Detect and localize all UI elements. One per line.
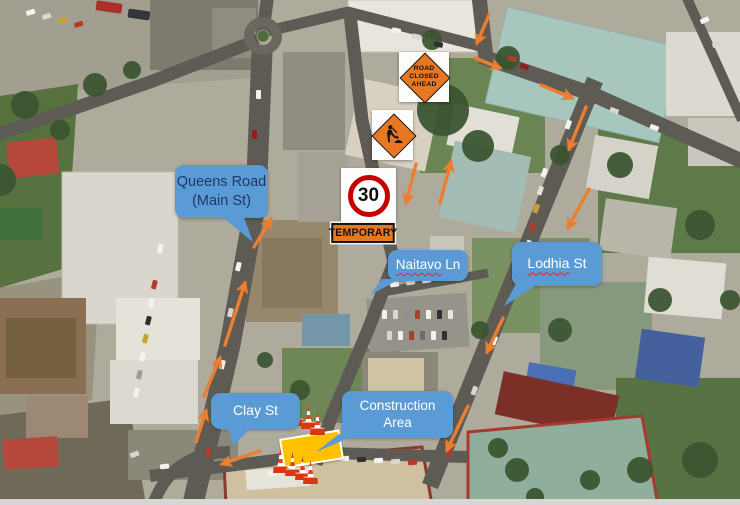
- traffic-management-aerial-map: ROAD CLOSED AHEAD 30 TEMPORARY Qu: [0, 0, 740, 505]
- lodhia-word: Lodhia: [527, 255, 569, 271]
- queens-road-line2: (Main St): [192, 192, 251, 210]
- lodhia-st-label: Lodhia St: [527, 255, 586, 273]
- construction-area-line2: Area: [383, 415, 412, 432]
- construction-area-line1: Construction: [360, 398, 436, 415]
- temporary-sign: TEMPORARY: [331, 223, 394, 243]
- road-closed-ahead-sign: ROAD CLOSED AHEAD: [399, 52, 449, 102]
- temporary-label: TEMPORARY: [329, 227, 398, 239]
- callout-naitavo-ln: Naitavo Ln: [388, 250, 468, 281]
- naitavo-suffix: Ln: [442, 257, 461, 272]
- speed-limit-30-sign: 30: [341, 168, 396, 223]
- naitavo-ln-label: Naitavo Ln: [396, 257, 461, 274]
- callout-clay-st: Clay St: [211, 393, 300, 429]
- callout-construction-area: Construction Area: [342, 391, 453, 438]
- road-closed-line2: CLOSED: [409, 73, 439, 81]
- page-edge: [0, 499, 740, 505]
- road-closed-line3: AHEAD: [411, 81, 436, 89]
- road-closed-ahead-text: ROAD CLOSED AHEAD: [399, 52, 449, 102]
- naitavo-word: Naitavo: [396, 257, 442, 272]
- speed-limit-value: 30: [341, 168, 396, 223]
- clay-st-label: Clay St: [233, 402, 278, 420]
- lodhia-suffix: St: [569, 255, 586, 271]
- orange-diamond-icon: [371, 113, 416, 158]
- callout-lodhia-st: Lodhia St: [512, 242, 602, 286]
- callout-queens-road: Queens Road (Main St): [175, 165, 268, 218]
- roadworks-sign: [372, 110, 413, 160]
- road-closed-line1: ROAD: [414, 65, 435, 73]
- roundabout: [249, 22, 277, 50]
- queens-road-line1: Queens Road: [177, 173, 266, 191]
